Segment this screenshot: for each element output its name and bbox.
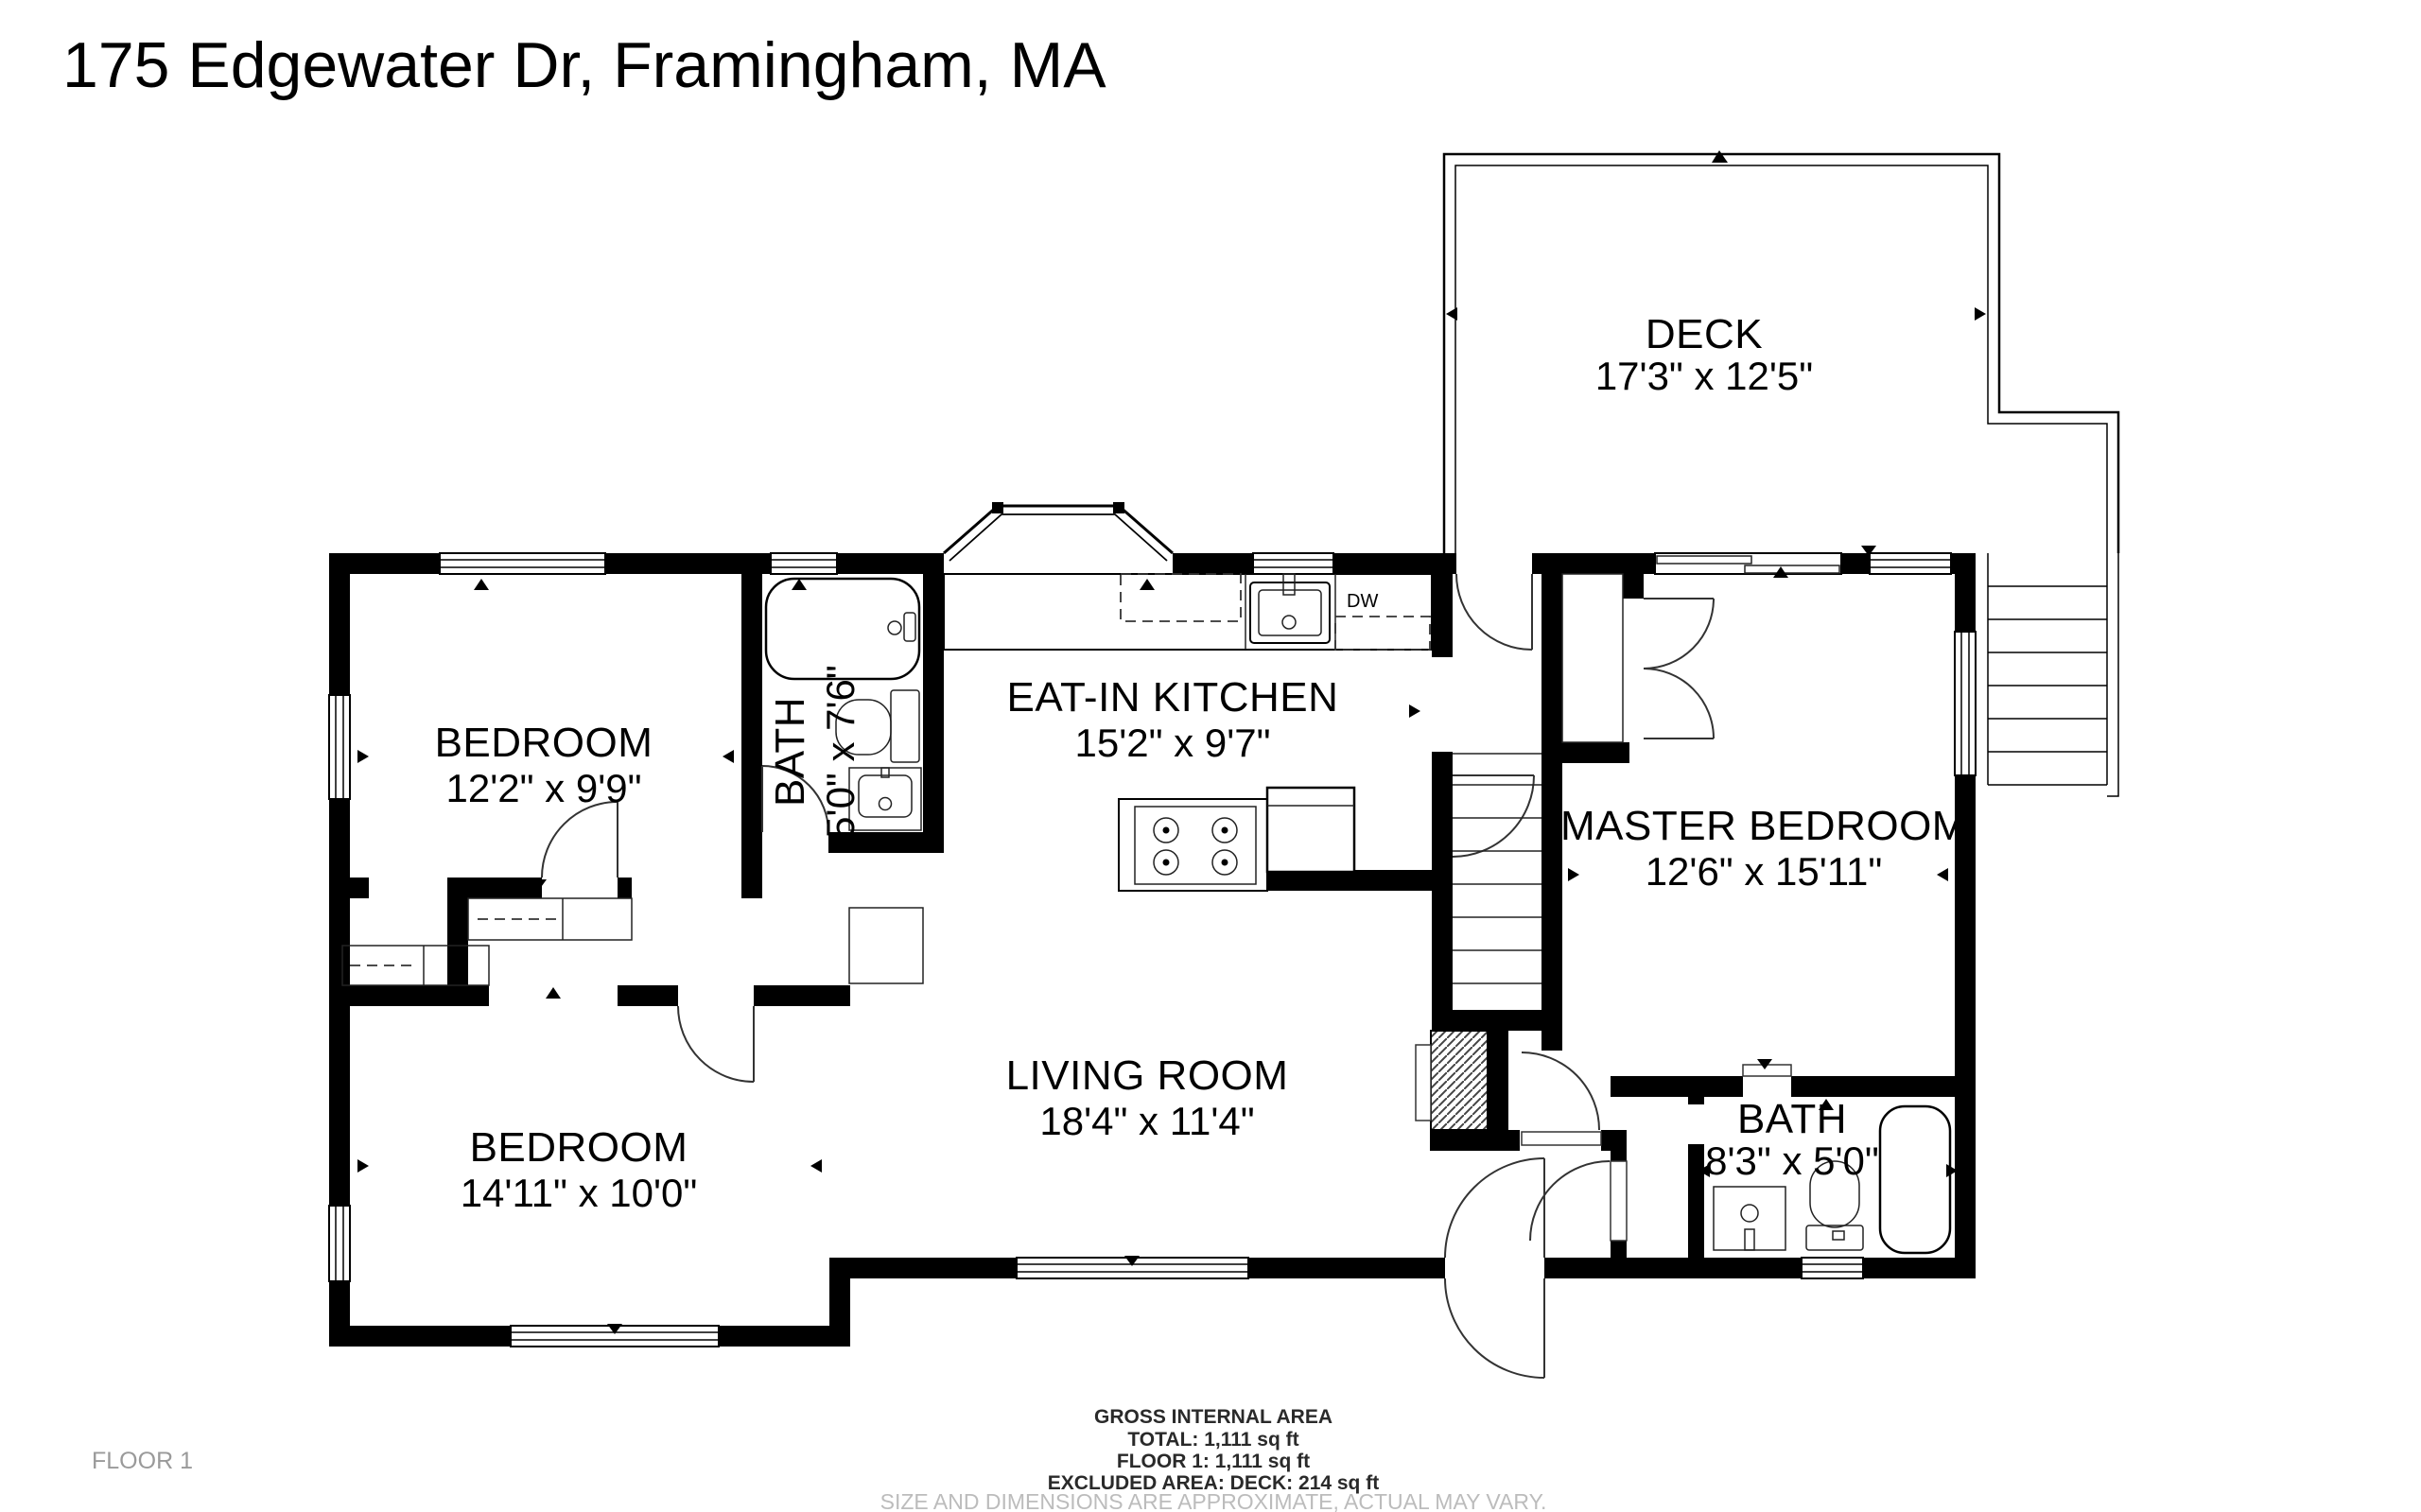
bay-window <box>944 502 1173 574</box>
door-bath2 <box>1743 1065 1791 1076</box>
deck-tick-up <box>1712 150 1728 163</box>
living-dims: 18'4" x 11'4" <box>1039 1099 1254 1143</box>
basement-stairs <box>1453 754 1541 983</box>
master-label: MASTER BEDROOM <box>1560 803 1967 849</box>
master-dims: 12'6" x 15'11" <box>1646 849 1883 894</box>
kitchen-island <box>1119 799 1267 891</box>
kitchen-dims: 15'2" x 9'7" <box>1075 721 1271 765</box>
door-master-closet <box>1644 599 1714 739</box>
floorplan-page: 175 Edgewater Dr, Framingham, MA DECK 17… <box>0 0 2421 1512</box>
door-basement-stairs <box>1453 775 1534 857</box>
bath1-dims: 5'0" x 7'6" <box>818 665 862 839</box>
door-bedroom2 <box>678 1006 754 1082</box>
footer: FLOOR 1 GROSS INTERNAL AREA TOTAL: 1,111… <box>92 1406 1546 1512</box>
footer-disclaimer: SIZE AND DIMENSIONS ARE APPROXIMATE, ACT… <box>880 1489 1547 1512</box>
slider-door-master <box>1655 553 1841 574</box>
floor-tag: FLOOR 1 <box>92 1448 193 1474</box>
footer-total: TOTAL: 1,111 sq ft <box>1127 1429 1298 1451</box>
stove <box>1135 807 1256 884</box>
bath2-dims: 8'3" x 5'0" <box>1705 1138 1879 1183</box>
window-bath2-bottom <box>1802 1258 1863 1278</box>
bathtub1 <box>766 579 919 679</box>
deck-dims: 17'3" x 12'5" <box>1595 354 1813 398</box>
window-bedroom2-left <box>329 1206 350 1281</box>
page-title: 175 Edgewater Dr, Framingham, MA <box>62 29 1106 101</box>
window-bedroom1-top <box>440 553 605 574</box>
window-master-right <box>1955 632 1976 775</box>
floorplan-canvas: 175 Edgewater Dr, Framingham, MA DECK 17… <box>0 0 2421 1512</box>
door-deck-kitchen <box>1456 574 1532 650</box>
bedroom1-dims: 12'2" x 9'9" <box>446 766 642 810</box>
bedroom2-dims: 14'11" x 10'0" <box>461 1171 698 1215</box>
mantle <box>1416 1045 1431 1121</box>
bath1-label: BATH <box>767 697 813 807</box>
windows <box>329 553 1976 1347</box>
dishwasher-label: DW <box>1347 591 1378 612</box>
closet-master <box>1562 574 1623 742</box>
window-kitchen-top <box>1253 553 1333 574</box>
bath2-label: BATH <box>1737 1096 1847 1142</box>
door-front-inner <box>1445 1158 1544 1258</box>
door-front-outer <box>1445 1278 1544 1378</box>
fridge <box>1267 788 1354 872</box>
deck-tick-left <box>1446 307 1457 321</box>
bedroom1-label: BEDROOM <box>435 720 653 766</box>
walls <box>329 553 1976 1347</box>
door-bedroom1 <box>542 802 618 878</box>
footer-floor1: FLOOR 1: 1,111 sq ft <box>1117 1451 1310 1472</box>
bedroom2-label: BEDROOM <box>470 1124 688 1171</box>
upper-cabinet <box>1121 574 1241 621</box>
closet-linen <box>849 908 923 983</box>
sink2 <box>1714 1187 1785 1250</box>
window-bedroom1-left <box>329 695 350 799</box>
chimney <box>1416 1031 1488 1130</box>
window-bath1-top <box>771 553 837 574</box>
bathtub2 <box>1880 1106 1950 1253</box>
living-label: LIVING ROOM <box>1006 1052 1289 1099</box>
door-master <box>1522 1052 1601 1145</box>
kitchen-label: EAT-IN KITCHEN <box>1007 674 1339 721</box>
kitchen-sink <box>1250 574 1330 643</box>
kitchen-counter <box>944 574 1432 650</box>
footer-gross-area: GROSS INTERNAL AREA <box>1094 1406 1332 1428</box>
closet-hall <box>468 898 632 940</box>
room-labels: BEDROOM 12'2" x 9'9" BATH 5'0" x 7'6" EA… <box>435 665 1967 1215</box>
dishwasher-outline <box>1335 617 1430 650</box>
deck-label: DECK <box>1646 311 1763 357</box>
deck-tick-right <box>1975 307 1986 321</box>
window-master-top <box>1870 553 1951 574</box>
deck-stairs <box>1988 553 2118 796</box>
